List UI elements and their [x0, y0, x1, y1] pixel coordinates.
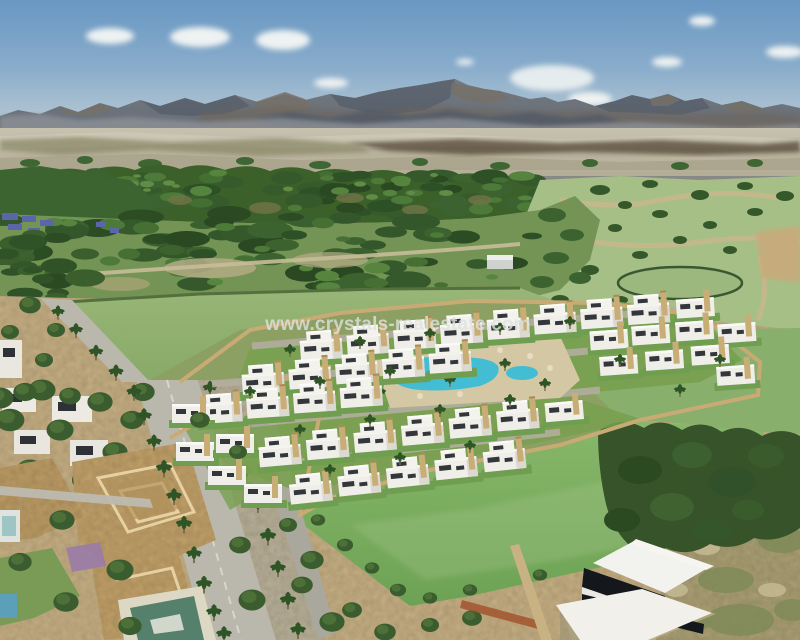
svg-text:www.crystals-realestate.com: www.crystals-realestate.com — [264, 314, 531, 335]
